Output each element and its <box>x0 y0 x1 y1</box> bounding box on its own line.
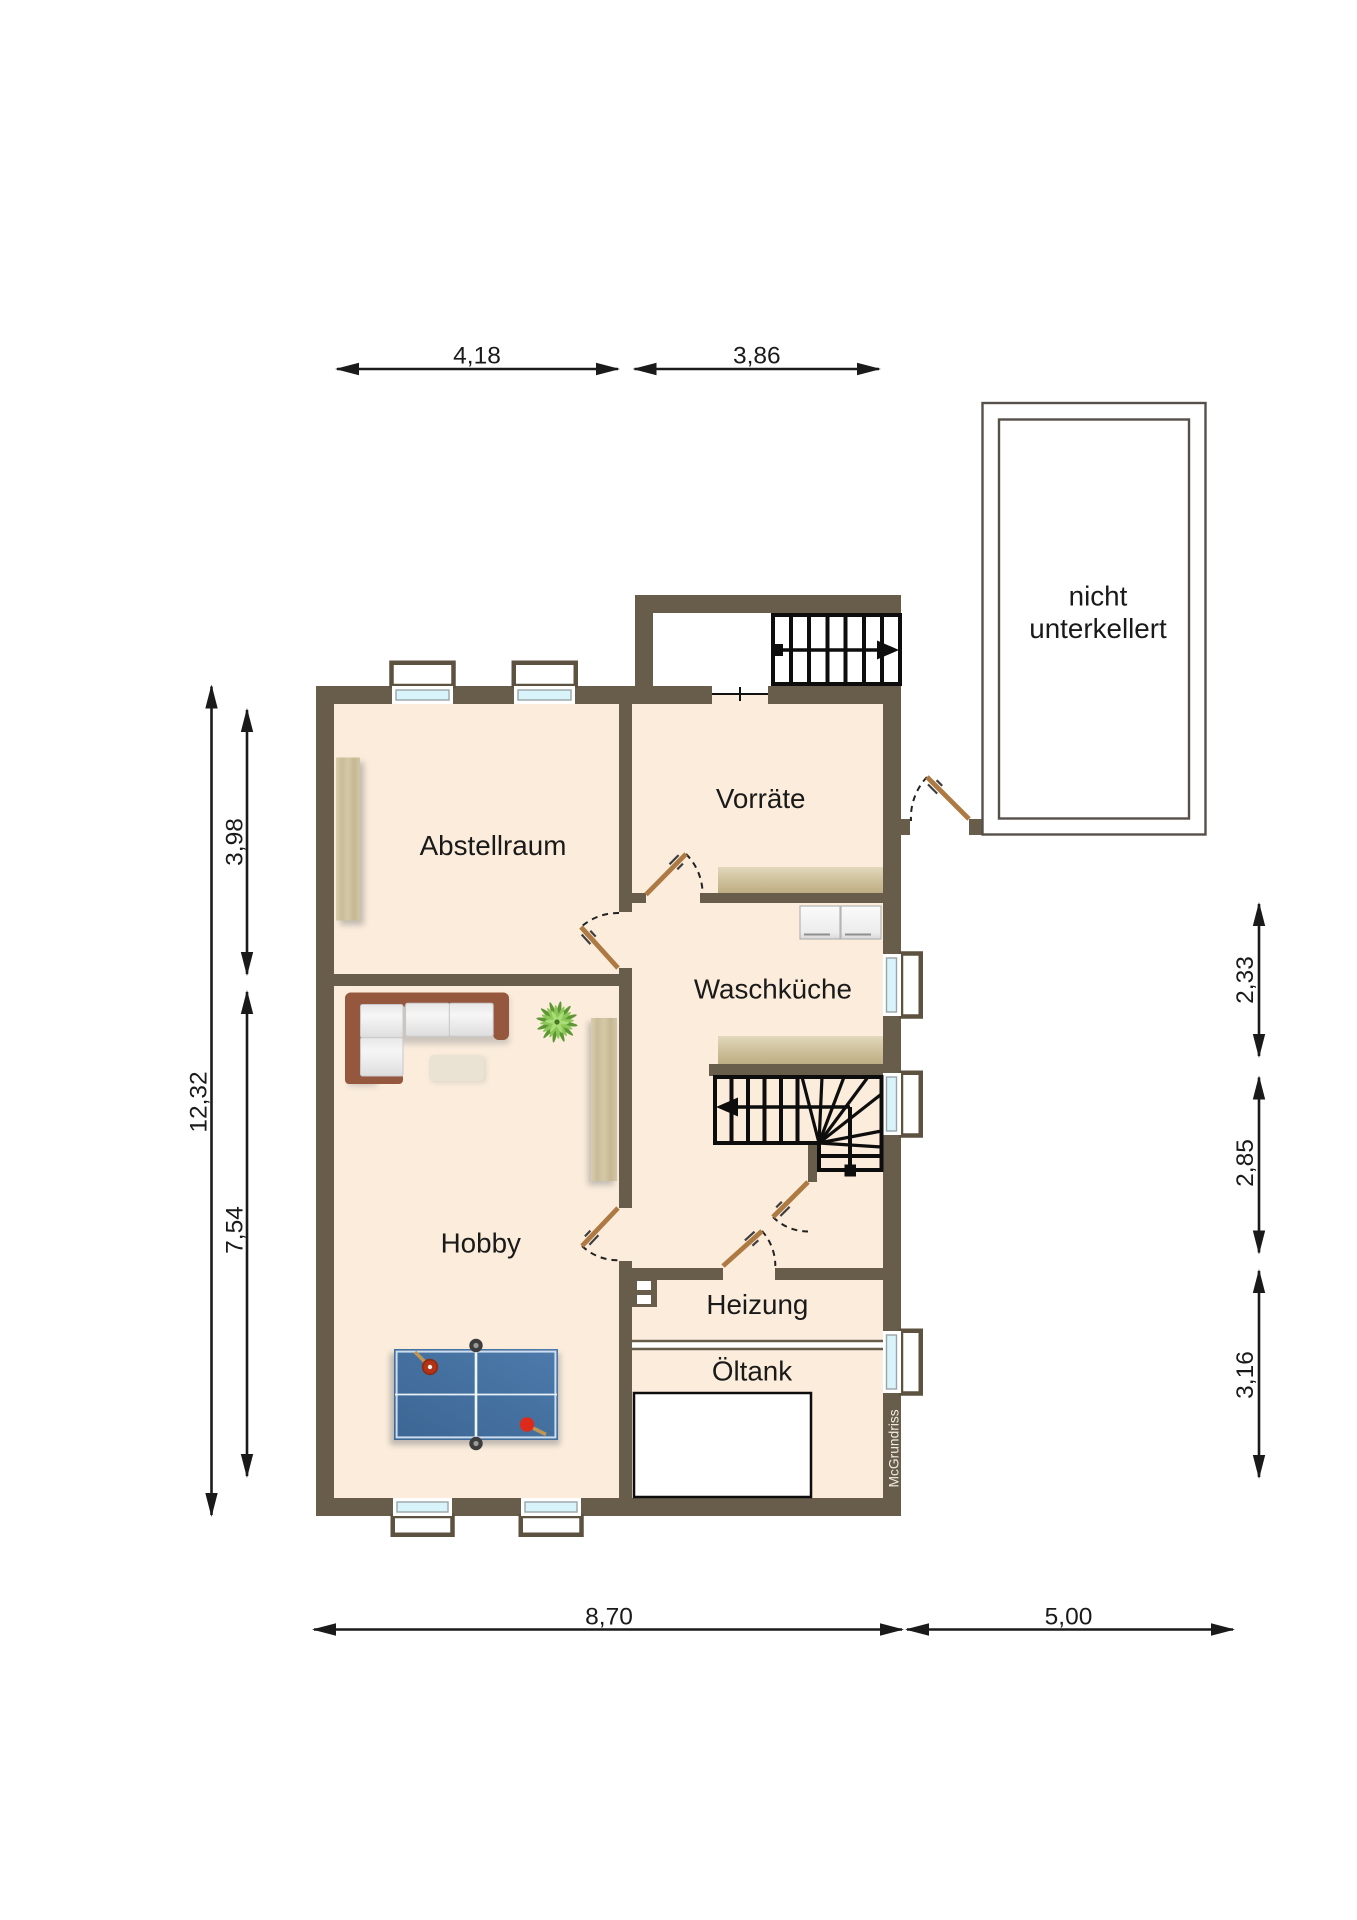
svg-text:5,00: 5,00 <box>1045 1604 1093 1631</box>
svg-text:2,85: 2,85 <box>1232 1139 1259 1187</box>
svg-text:Vorräte: Vorräte <box>716 783 806 814</box>
svg-text:4,18: 4,18 <box>453 343 501 370</box>
svg-text:Waschküche: Waschküche <box>694 974 852 1005</box>
svg-text:12,32: 12,32 <box>186 1071 213 1132</box>
svg-text:8,70: 8,70 <box>585 1604 633 1631</box>
svg-text:Abstellraum: Abstellraum <box>420 830 567 861</box>
svg-text:Heizung: Heizung <box>706 1289 808 1320</box>
svg-text:Öltank: Öltank <box>712 1356 792 1387</box>
svg-text:2,33: 2,33 <box>1232 956 1259 1004</box>
svg-text:3,16: 3,16 <box>1232 1351 1259 1399</box>
svg-text:Hobby: Hobby <box>441 1228 521 1259</box>
svg-text:7,54: 7,54 <box>222 1206 249 1254</box>
svg-text:unterkellert: unterkellert <box>1029 613 1167 644</box>
svg-text:McGrundriss: McGrundriss <box>886 1409 901 1487</box>
svg-text:nicht: nicht <box>1069 581 1128 612</box>
svg-text:3,98: 3,98 <box>222 818 249 866</box>
svg-text:3,86: 3,86 <box>733 343 781 370</box>
